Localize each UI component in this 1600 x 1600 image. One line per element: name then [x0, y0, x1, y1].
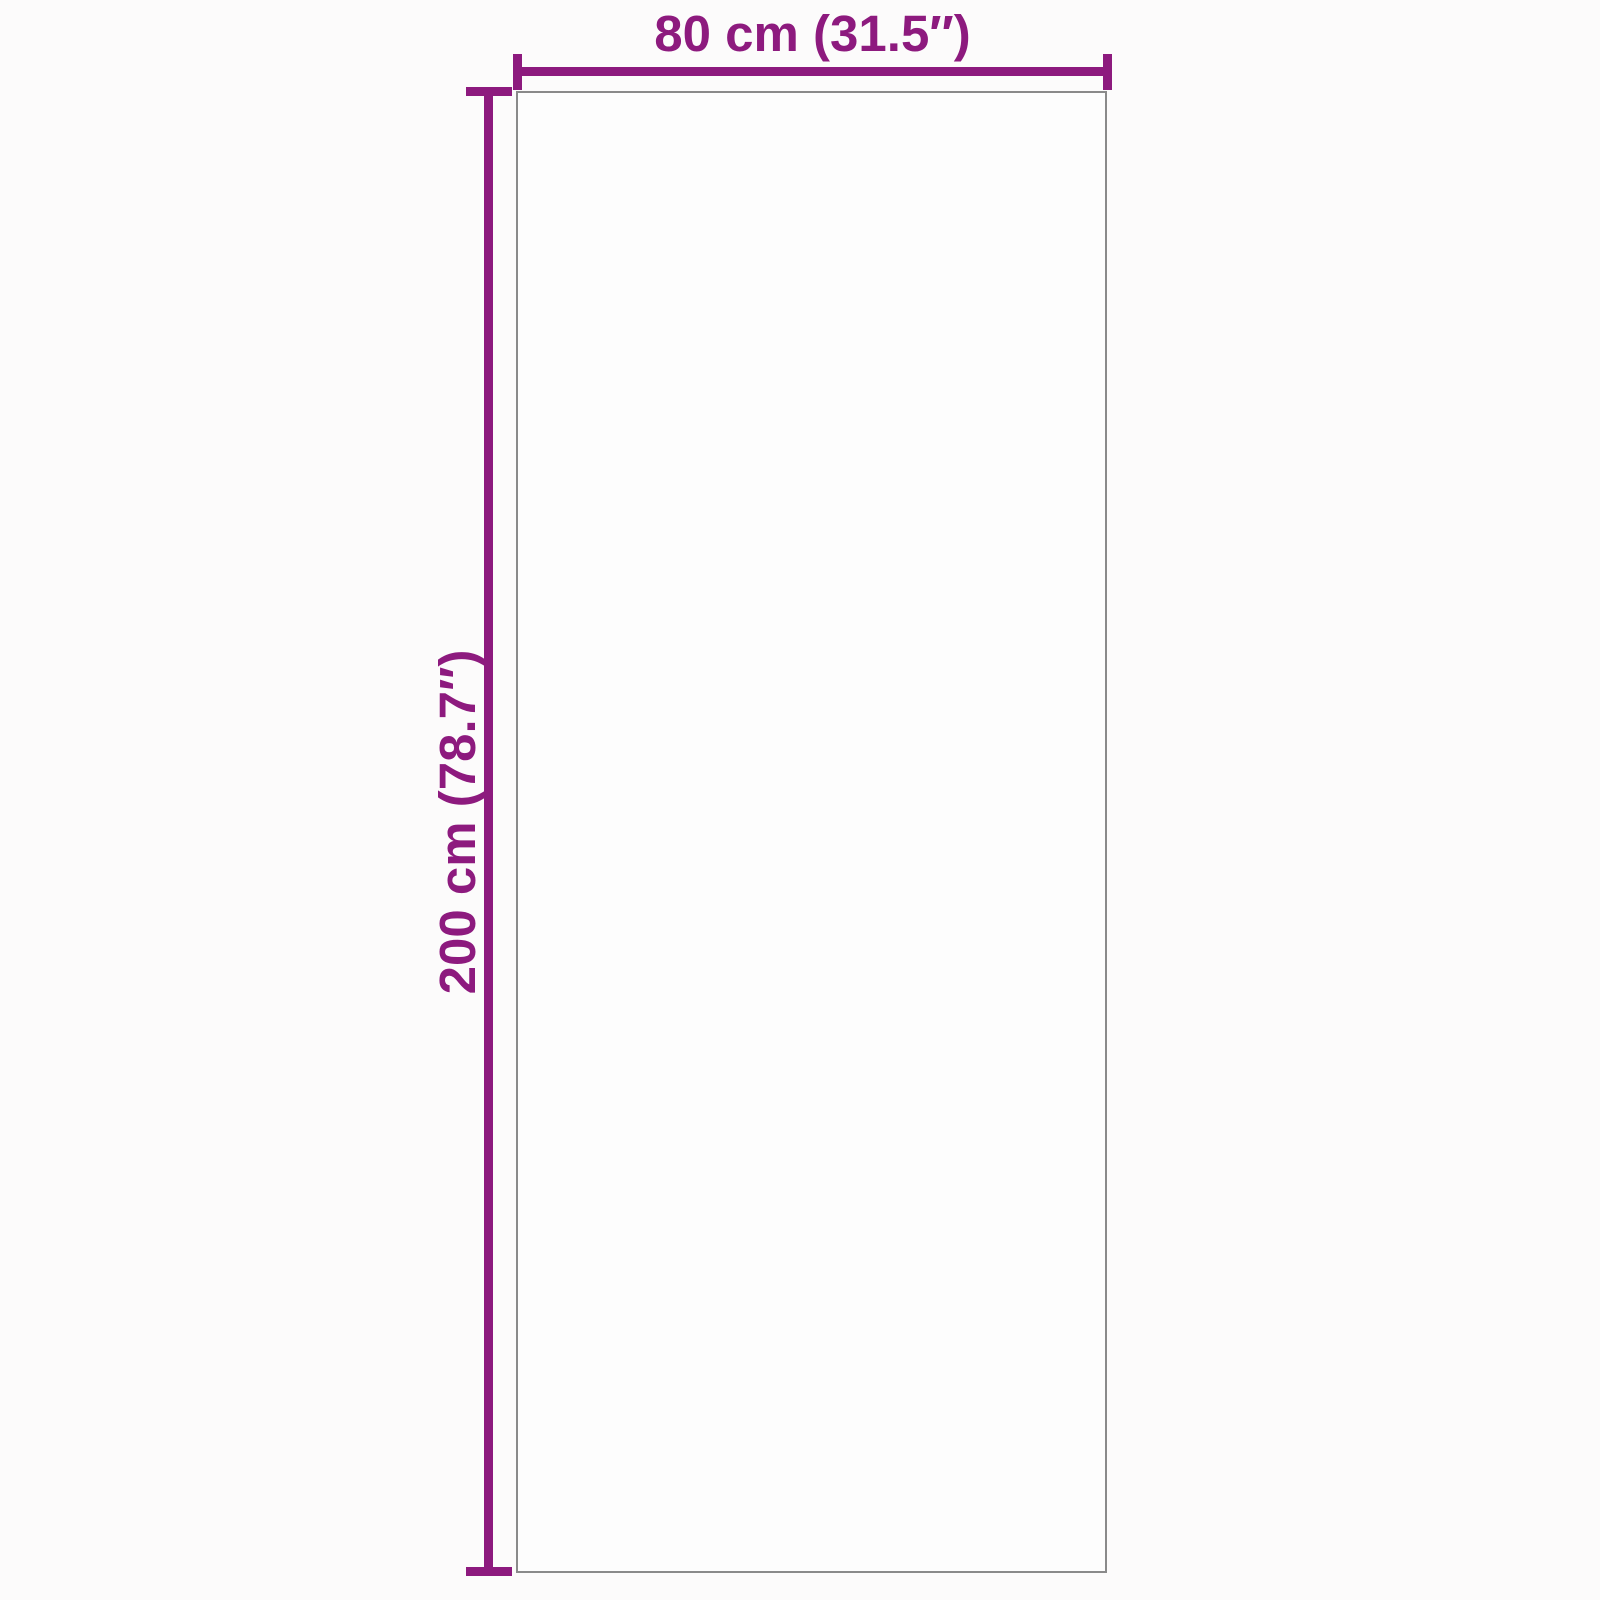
width-dimension-label: 80 cm (31.5″) [513, 6, 1112, 62]
height-dimension-top-tick [466, 87, 512, 96]
width-dimension-line [513, 67, 1112, 76]
dimension-diagram: 80 cm (31.5″) 200 cm (78.7″) [0, 0, 1600, 1600]
height-dimension-bottom-tick [466, 1567, 512, 1576]
product-outline-rectangle [516, 91, 1107, 1573]
height-dimension-label: 200 cm (78.7″) [430, 650, 486, 995]
